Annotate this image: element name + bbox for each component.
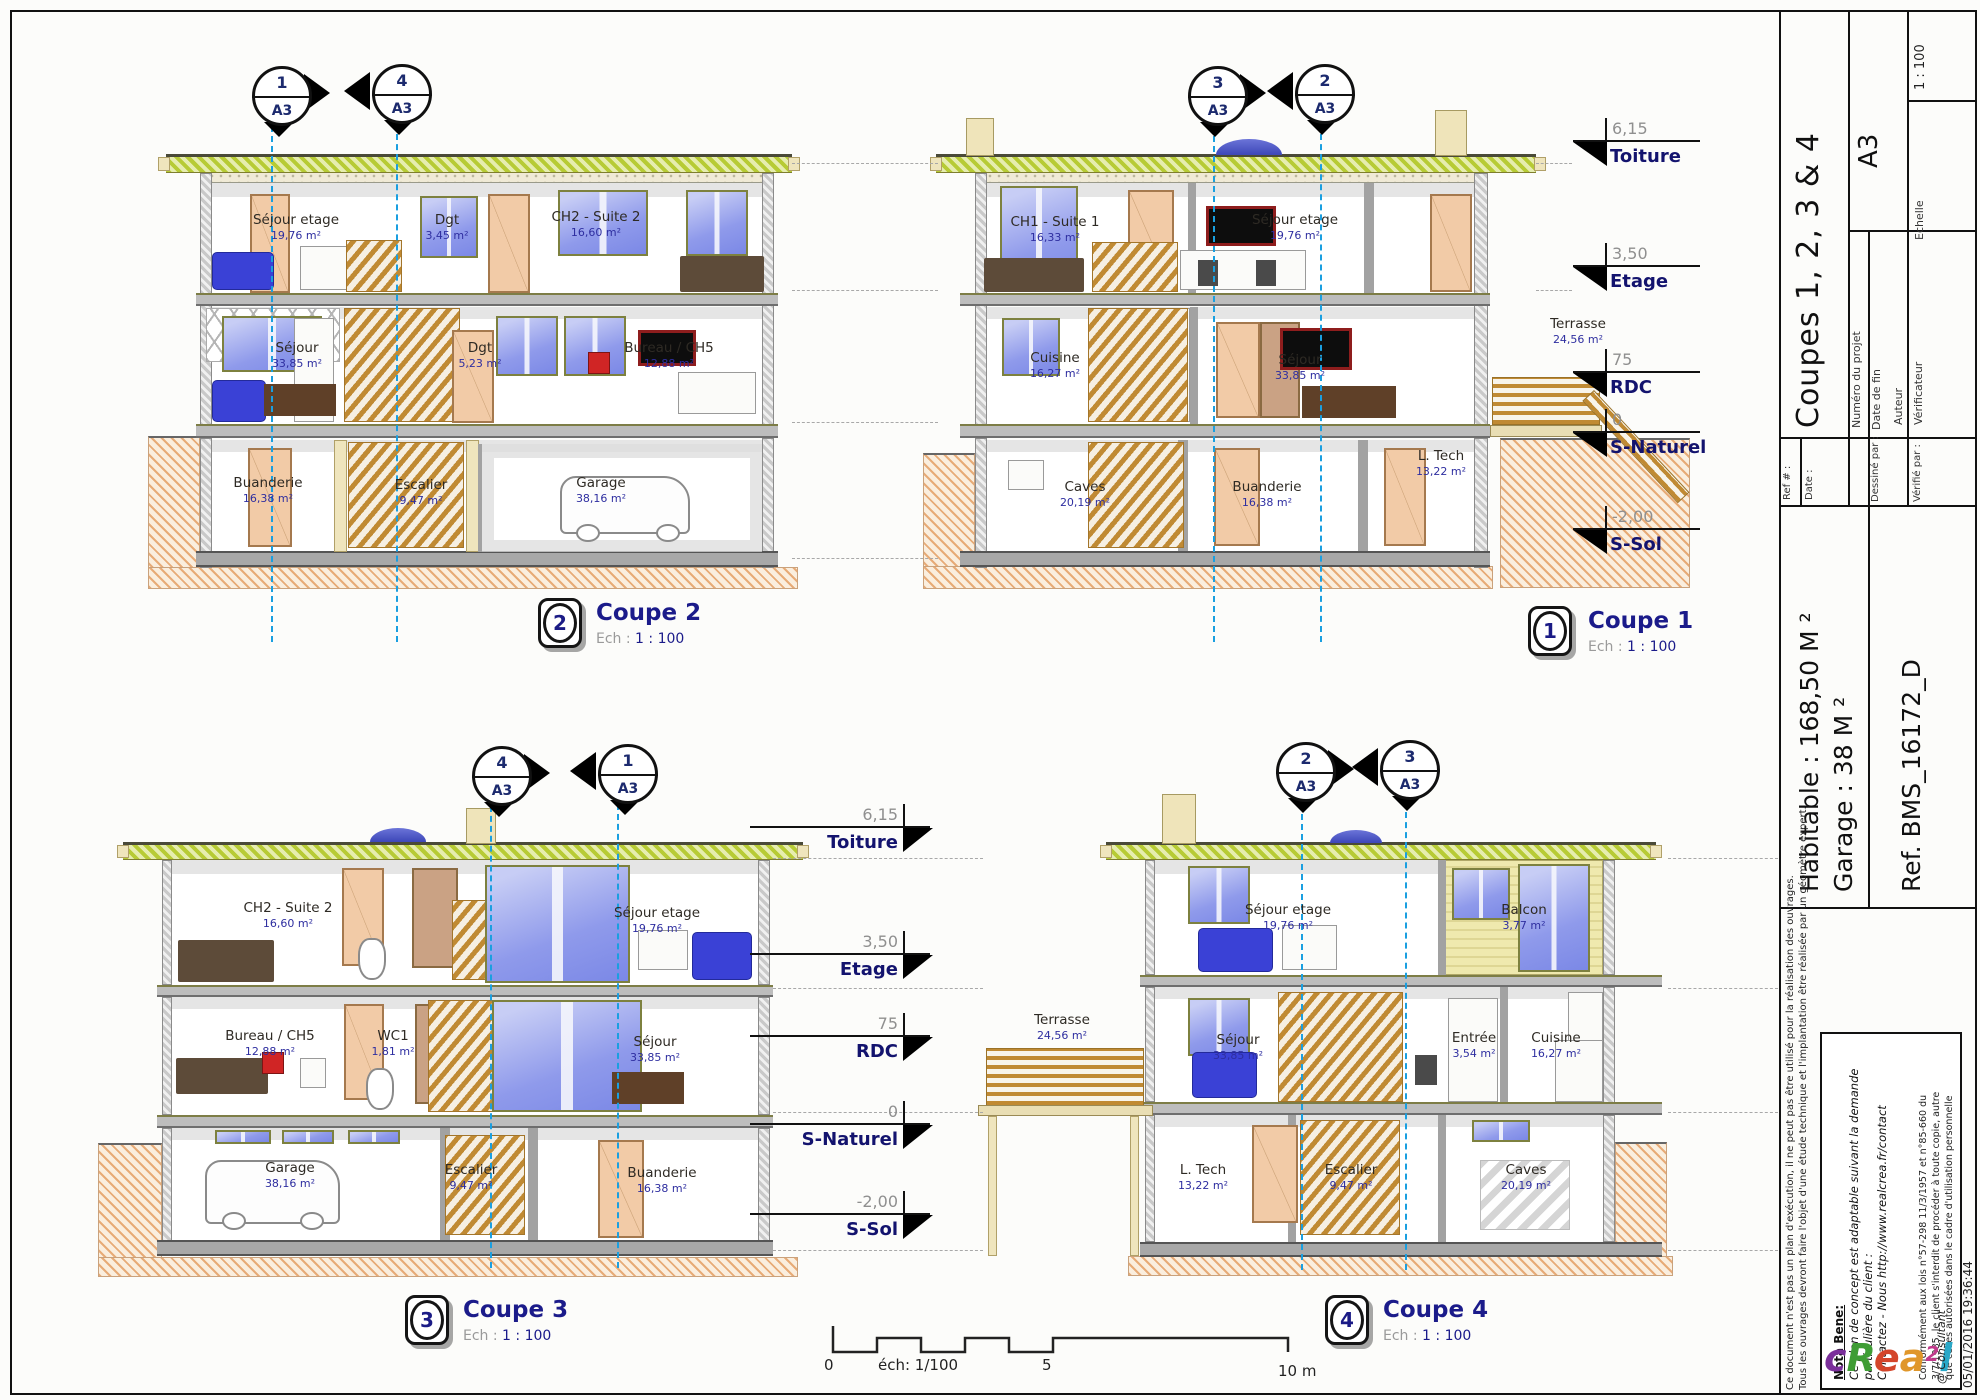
stairs: [344, 308, 460, 422]
post: [334, 440, 347, 552]
crea-logo: cRea2l: [1824, 1336, 1952, 1380]
section-cut-line: [617, 804, 619, 1268]
toilet: [366, 1068, 394, 1110]
level-line: [1536, 163, 1572, 164]
nota-bene-line-1: Ce plan de concept est adaptable suivant…: [1849, 1069, 1861, 1380]
section-marker-line: [598, 774, 658, 776]
coupe-3-badge-number: 3: [410, 1300, 444, 1340]
terrace-deck: [978, 1105, 1153, 1116]
ref-field-label: Ref # :: [1783, 466, 1793, 500]
scale-bar-graphic: [826, 1320, 1296, 1360]
section-arrow-icon: [1267, 72, 1293, 110]
section-marker-number: 1: [255, 73, 309, 92]
room-name: Caves: [1501, 1162, 1551, 1178]
room-name: Buanderie: [627, 1165, 696, 1181]
section-cut-line: [1213, 126, 1215, 642]
room-area: 33,85 m²: [1213, 1049, 1263, 1062]
level-flag-tick: [1605, 118, 1607, 140]
checker-header: Vérificateur: [1913, 362, 1924, 425]
floor-slab: [196, 424, 778, 438]
exterior-wall: [162, 997, 172, 1115]
sideboard: [678, 372, 756, 414]
floor-slab: [960, 293, 1490, 306]
room-area: 19,76 m²: [253, 229, 339, 242]
section-marker: 1 A3: [598, 744, 658, 804]
room-label: Escalier9,47 m²: [1325, 1162, 1378, 1192]
room-name: Séjour: [1213, 1032, 1263, 1048]
section-marker-sheet: A3: [375, 101, 429, 117]
room-label: Cuisine16,27 m²: [1531, 1030, 1581, 1060]
room-area: 16,60 m²: [244, 917, 333, 930]
logo-subtitle: @ Consultant: [1936, 1310, 1947, 1384]
coupe-3-scale: Ech : 1 : 100: [463, 1328, 551, 1344]
room-area: 33,85 m²: [1275, 369, 1325, 382]
terrasse-label: Terrasse24,56 m²: [1550, 316, 1606, 346]
level-flag-tick: [1605, 506, 1607, 528]
room-label: Caves20,19 m²: [1060, 479, 1110, 509]
section-marker-sheet: A3: [475, 783, 529, 799]
room-area: 38,16 m²: [576, 492, 626, 505]
project-number-header: Numéro du projet: [1851, 331, 1862, 428]
section-marker-number: 1: [601, 751, 655, 770]
level-flag-line: [1573, 371, 1700, 373]
room-label: Garage38,16 m²: [576, 475, 626, 505]
room-label: Cuisine16,27 m²: [1030, 350, 1080, 380]
dining-table: [1302, 386, 1396, 418]
basement-wall: [1603, 1115, 1615, 1242]
section-marker-sheet: A3: [1279, 779, 1333, 795]
window: [686, 190, 748, 256]
room-area: 12,88 m²: [225, 1045, 315, 1058]
door: [1216, 322, 1260, 418]
room-label: Entrée3,54 m²: [1452, 1030, 1496, 1060]
title-block-divider: [1779, 505, 1977, 507]
level-label: S-Sol: [1610, 534, 1662, 555]
room-area: 19,76 m²: [1245, 919, 1331, 932]
basement-wall: [975, 438, 987, 568]
interior-wall: [1364, 183, 1374, 293]
chimney: [1162, 794, 1196, 844]
room-label: Séjour etage19,76 m²: [1252, 212, 1338, 242]
scale-label: Ech :: [1383, 1328, 1418, 1344]
section-marker-number: 3: [1383, 747, 1437, 766]
title-block-divider: [1907, 10, 1909, 505]
chair: [588, 352, 610, 374]
room-name: Dgt: [425, 212, 468, 228]
level-flag-tick: [903, 1191, 905, 1213]
room-label: Bureau / CH512,88 m²: [624, 340, 714, 370]
level-flag-line: [1573, 265, 1700, 267]
room-name: Terrasse: [1034, 1012, 1090, 1028]
roof-hatch: [1106, 842, 1656, 860]
room-label: Caves20,19 m²: [1501, 1162, 1551, 1192]
roof-insulation-band: [987, 173, 1477, 183]
room-name: CH1 - Suite 1: [1011, 214, 1100, 230]
end-date-header: Date de fin: [1871, 369, 1882, 430]
section-cut-line: [1405, 802, 1407, 1270]
level-flag-line: [750, 1035, 930, 1037]
section-cut-line: [396, 124, 398, 642]
bed: [176, 1058, 268, 1094]
coupe-3-badge: 3: [405, 1295, 449, 1345]
level-line: [792, 422, 938, 423]
level-value: -2,00: [1612, 507, 1653, 526]
level-label: S-Naturel: [760, 1129, 898, 1150]
drawing-sheet: 1 A3 4 A3 Séjour etage19,76 m² Dgt3,45 m…: [0, 0, 1980, 1400]
section-marker-sheet: A3: [1298, 101, 1352, 117]
desk: [638, 930, 688, 970]
room-area: 3,54 m²: [1452, 1047, 1496, 1060]
ceiling-shadow: [987, 307, 1474, 319]
post: [988, 1116, 997, 1256]
scale-value: 1 : 100: [502, 1328, 551, 1344]
dining-table: [612, 1072, 684, 1104]
room-area: 19,76 m²: [1252, 229, 1338, 242]
room-label: Balcon3,77 m²: [1501, 902, 1547, 932]
room-name: Caves: [1060, 479, 1110, 495]
chimney: [1435, 110, 1467, 156]
earth-hatch: [1128, 1256, 1673, 1276]
interior-wall: [1438, 1115, 1446, 1242]
document-reference: Ref. BMS_16172_D: [1899, 659, 1924, 892]
section-marker: 2 A3: [1276, 742, 1336, 802]
eave-board: [1100, 845, 1112, 858]
room-label: CH2 - Suite 216,60 m²: [244, 900, 333, 930]
coupe-2-badge: 2: [538, 598, 582, 648]
room-name: Séjour etage: [614, 905, 700, 921]
level-label: Etage: [760, 959, 898, 980]
level-value: 6,15: [760, 805, 898, 824]
level-line: [773, 1250, 983, 1251]
coupe-3-title: Coupe 3: [463, 1297, 568, 1323]
basement-wall: [1145, 1115, 1155, 1242]
coupe-1-badge: 1: [1528, 606, 1572, 656]
section-marker-line: [252, 96, 312, 98]
room-name: Entrée: [1452, 1030, 1496, 1046]
level-value: 3,50: [1612, 244, 1648, 263]
level-line: [1668, 988, 1778, 989]
coupe-4-badge: 4: [1325, 1295, 1369, 1345]
section-marker-line: [1188, 96, 1248, 98]
eave-board: [158, 157, 170, 171]
interior-wall: [1438, 860, 1446, 975]
exterior-wall: [1474, 173, 1488, 295]
level-flag-tick: [903, 1013, 905, 1035]
room-area: 16,27 m²: [1030, 367, 1080, 380]
room-area: 9,47 m²: [1325, 1179, 1378, 1192]
section-cut-line: [1301, 804, 1303, 1270]
foundation-slab: [1140, 1242, 1662, 1257]
echelle-header: Echelle: [1914, 200, 1925, 240]
logo-letter: R: [1847, 1336, 1874, 1380]
room-name: Escalier: [1325, 1162, 1378, 1178]
section-marker-sheet: A3: [1191, 103, 1245, 119]
basement-window: [1472, 1120, 1530, 1142]
level-flag-tick: [1605, 409, 1607, 431]
chimney: [966, 118, 994, 156]
room-area: 16,60 m²: [552, 226, 641, 239]
sofa: [1198, 928, 1273, 972]
room-name: Buanderie: [233, 475, 302, 491]
stairs: [1092, 242, 1178, 292]
section-marker: 3 A3: [1188, 66, 1248, 126]
car-wheel: [300, 1212, 324, 1230]
coupe-2-scale: Ech : 1 : 100: [596, 631, 684, 647]
section-arrow-icon: [570, 752, 596, 790]
level-flag-tick: [903, 931, 905, 953]
earth-hatch: [148, 567, 798, 589]
dining-table: [264, 384, 336, 416]
room-label: WC11,81 m²: [371, 1028, 414, 1058]
interior-wall: [1358, 440, 1368, 552]
level-flag-line: [750, 953, 930, 955]
roof-hatch: [936, 154, 1536, 173]
print-datetime: 05/01/2016 19:36:44: [1962, 1261, 1974, 1388]
section-marker-sheet: A3: [1383, 777, 1437, 793]
level-line: [792, 558, 938, 559]
scale-bar-zero: 0: [824, 1356, 834, 1374]
room-area: 33,85 m²: [630, 1051, 680, 1064]
logo-letter: e: [1874, 1336, 1900, 1380]
room-name: Escalier: [395, 477, 448, 493]
sheet-title: Coupes 1, 2, 3 & 4: [1794, 132, 1824, 428]
stairs: [346, 240, 402, 292]
eave-board: [117, 845, 129, 858]
room-label: Séjour33,85 m²: [1213, 1032, 1263, 1062]
room-area: 16,38 m²: [233, 492, 302, 505]
level-line: [792, 163, 938, 164]
section-marker-number: 4: [475, 753, 529, 772]
room-name: L. Tech: [1178, 1162, 1228, 1178]
bed: [178, 940, 274, 982]
sofa: [212, 252, 274, 290]
level-flag-tick: [1605, 243, 1607, 265]
room-label: Séjour etage19,76 m²: [1245, 902, 1331, 932]
level-value: 3,50: [760, 932, 898, 951]
level-flag-line: [750, 1213, 930, 1215]
coupe-4-scale: Ech : 1 : 100: [1383, 1328, 1471, 1344]
room-area: 16,38 m²: [1232, 496, 1301, 509]
section-arrow-icon: [344, 72, 370, 110]
section-marker-line: [1380, 770, 1440, 772]
level-line: [792, 290, 938, 291]
section-marker-number: 2: [1279, 749, 1333, 768]
roof-hatch: [123, 842, 803, 860]
level-label: RDC: [1610, 377, 1652, 398]
eave-board: [1534, 157, 1546, 171]
section-marker-line: [472, 776, 532, 778]
stairs: [1278, 992, 1403, 1102]
coupe-1-scale: Ech : 1 : 100: [1588, 639, 1676, 655]
level-flag-line: [1573, 528, 1700, 530]
scale-bar-ten: 10 m: [1278, 1362, 1316, 1380]
room-label: Séjour etage19,76 m²: [614, 905, 700, 935]
exterior-wall: [1145, 860, 1155, 975]
coupe-1-title: Coupe 1: [1588, 608, 1693, 634]
section-marker-number: 2: [1298, 71, 1352, 90]
room-area: 3,77 m²: [1501, 919, 1547, 932]
room-name: Cuisine: [1531, 1030, 1581, 1046]
roof-hatch: [166, 154, 792, 173]
room-name: CH2 - Suite 2: [244, 900, 333, 916]
room-label: Séjour33,85 m²: [1275, 352, 1325, 382]
title-block-divider: [1848, 10, 1850, 505]
level-flag-line: [1573, 431, 1700, 433]
room-area: 20,19 m²: [1060, 496, 1110, 509]
date-field-label: Date :: [1805, 470, 1815, 500]
section-marker-line: [1276, 772, 1336, 774]
room-area: 5,23 m²: [458, 357, 501, 370]
level-line: [1536, 290, 1572, 291]
exterior-wall: [1474, 305, 1488, 440]
title-block-divider: [1800, 437, 1802, 505]
interior-wall: [528, 1128, 538, 1240]
paper-size: A3: [1856, 134, 1882, 168]
level-value: 0: [760, 1102, 898, 1121]
scale-value: 1 : 100: [1627, 639, 1676, 655]
sofa: [212, 380, 266, 422]
door: [1430, 194, 1472, 292]
level-value: 6,15: [1612, 119, 1648, 138]
logo-letter: a: [1900, 1336, 1926, 1380]
roof-insulation-band: [200, 173, 774, 183]
door: [488, 194, 530, 293]
car-wheel: [222, 1212, 246, 1230]
room-area: 24,56 m²: [1550, 333, 1606, 346]
post: [1130, 1116, 1139, 1256]
room-label: Séjour33,85 m²: [630, 1034, 680, 1064]
coupe-2-title: Coupe 2: [596, 600, 701, 626]
level-label: Toiture: [760, 832, 898, 853]
scale-bar-ratio: éch: 1/100: [878, 1356, 958, 1374]
chair: [300, 1058, 326, 1088]
room-name: Garage: [576, 475, 626, 491]
room-area: 3,45 m²: [425, 229, 468, 242]
level-value: 75: [1612, 350, 1632, 369]
section-marker-number: 3: [1191, 73, 1245, 92]
scale-label: Ech :: [463, 1328, 498, 1344]
window: [496, 316, 558, 376]
earth-hatch: [98, 1257, 798, 1277]
checked-by-field-label: Vérifié par :: [1913, 444, 1923, 502]
floor-slab: [196, 293, 778, 306]
room-name: WC1: [371, 1028, 414, 1044]
level-flag-line: [750, 826, 930, 828]
section-marker-line: [1295, 94, 1355, 96]
terrasse-label: Terrasse24,56 m²: [1034, 1012, 1090, 1042]
chair: [1198, 260, 1218, 286]
level-label: S-Sol: [760, 1219, 898, 1240]
author-header: Auteur: [1893, 388, 1904, 425]
room-name: Bureau / CH5: [225, 1028, 315, 1044]
room-area: 13,22 m²: [1416, 465, 1466, 478]
logo-letter: c: [1824, 1336, 1847, 1380]
earth-hatch: [923, 566, 1493, 589]
room-name: Terrasse: [1550, 316, 1606, 332]
level-label: Toiture: [1610, 146, 1681, 167]
french-window: [485, 865, 630, 983]
room-label: L. Tech13,22 m²: [1178, 1162, 1228, 1192]
level-line: [1668, 1112, 1778, 1113]
drawn-by-field-label: Dessiné par :: [1871, 436, 1881, 502]
scale-label: Ech :: [596, 631, 631, 647]
chair: [1256, 260, 1276, 286]
eave-board: [788, 157, 800, 171]
level-value: -2,00: [760, 1192, 898, 1211]
room-name: Dgt: [458, 340, 501, 356]
level-label: Etage: [1610, 271, 1668, 292]
level-label: RDC: [760, 1041, 898, 1062]
floor-slab: [1140, 975, 1662, 987]
foundation-slab: [196, 551, 778, 567]
room-name: Séjour etage: [253, 212, 339, 228]
room-name: Garage: [265, 1160, 315, 1176]
room-area: 16,33 m²: [1011, 231, 1100, 244]
floor-slab: [157, 1115, 773, 1128]
coupe-1-badge-number: 1: [1533, 611, 1567, 651]
room-label: Buanderie16,38 m²: [627, 1165, 696, 1195]
room-label: Séjour33,85 m²: [272, 340, 322, 370]
section-marker: 2 A3: [1295, 64, 1355, 124]
room-label: Dgt5,23 m²: [458, 340, 501, 370]
room-area: 12,88 m²: [624, 357, 714, 370]
room-name: L. Tech: [1416, 448, 1466, 464]
room-name: Balcon: [1501, 902, 1547, 918]
room-area: 9,47 m²: [445, 1179, 498, 1192]
level-line: [773, 858, 983, 859]
door: [1252, 1125, 1298, 1223]
side-note-1: Ce document n'est pas un plan d'exécutio…: [1786, 875, 1796, 1390]
room-area: 16,27 m²: [1531, 1047, 1581, 1060]
level-flag-tick: [1605, 349, 1607, 371]
toilet: [358, 938, 386, 980]
room-name: Bureau / CH5: [624, 340, 714, 356]
level-label: S-Naturel: [1610, 437, 1706, 458]
foundation-slab: [157, 1240, 773, 1256]
sheet-scale: 1 : 100: [1914, 44, 1927, 90]
exterior-wall: [762, 305, 774, 427]
exterior-wall: [1145, 987, 1155, 1102]
foundation-slab: [960, 551, 1490, 567]
ceiling-shadow: [212, 183, 762, 197]
stairs: [1088, 308, 1188, 422]
eave-board: [930, 157, 942, 171]
room-label: Bureau / CH512,88 m²: [225, 1028, 315, 1058]
floor-slab: [1140, 1102, 1662, 1115]
section-marker-number: 4: [375, 71, 429, 90]
room-name: Séjour etage: [1252, 212, 1338, 228]
room-label: Escalier9,47 m²: [395, 477, 448, 507]
section-marker-sheet: A3: [601, 781, 655, 797]
room-area: 19,76 m²: [614, 922, 700, 935]
level-flag-line: [1573, 140, 1700, 142]
section-marker: 1 A3: [252, 66, 312, 126]
section-marker: 4 A3: [372, 64, 432, 124]
interior-wall: [1500, 987, 1508, 1102]
garage-door-frame: [478, 444, 482, 552]
room-label: Garage38,16 m²: [265, 1160, 315, 1190]
earth-hatch: [98, 1143, 162, 1273]
section-marker: 3 A3: [1380, 740, 1440, 800]
room-label: CH1 - Suite 116,33 m²: [1011, 214, 1100, 244]
level-flag-tick: [903, 804, 905, 826]
scale-value: 1 : 100: [635, 631, 684, 647]
scale-value: 1 : 100: [1422, 1328, 1471, 1344]
room-name: Buanderie: [1232, 479, 1301, 495]
exterior-wall: [200, 173, 212, 295]
coupe-4-badge-number: 4: [1330, 1300, 1364, 1340]
basement-wall: [1474, 438, 1488, 568]
